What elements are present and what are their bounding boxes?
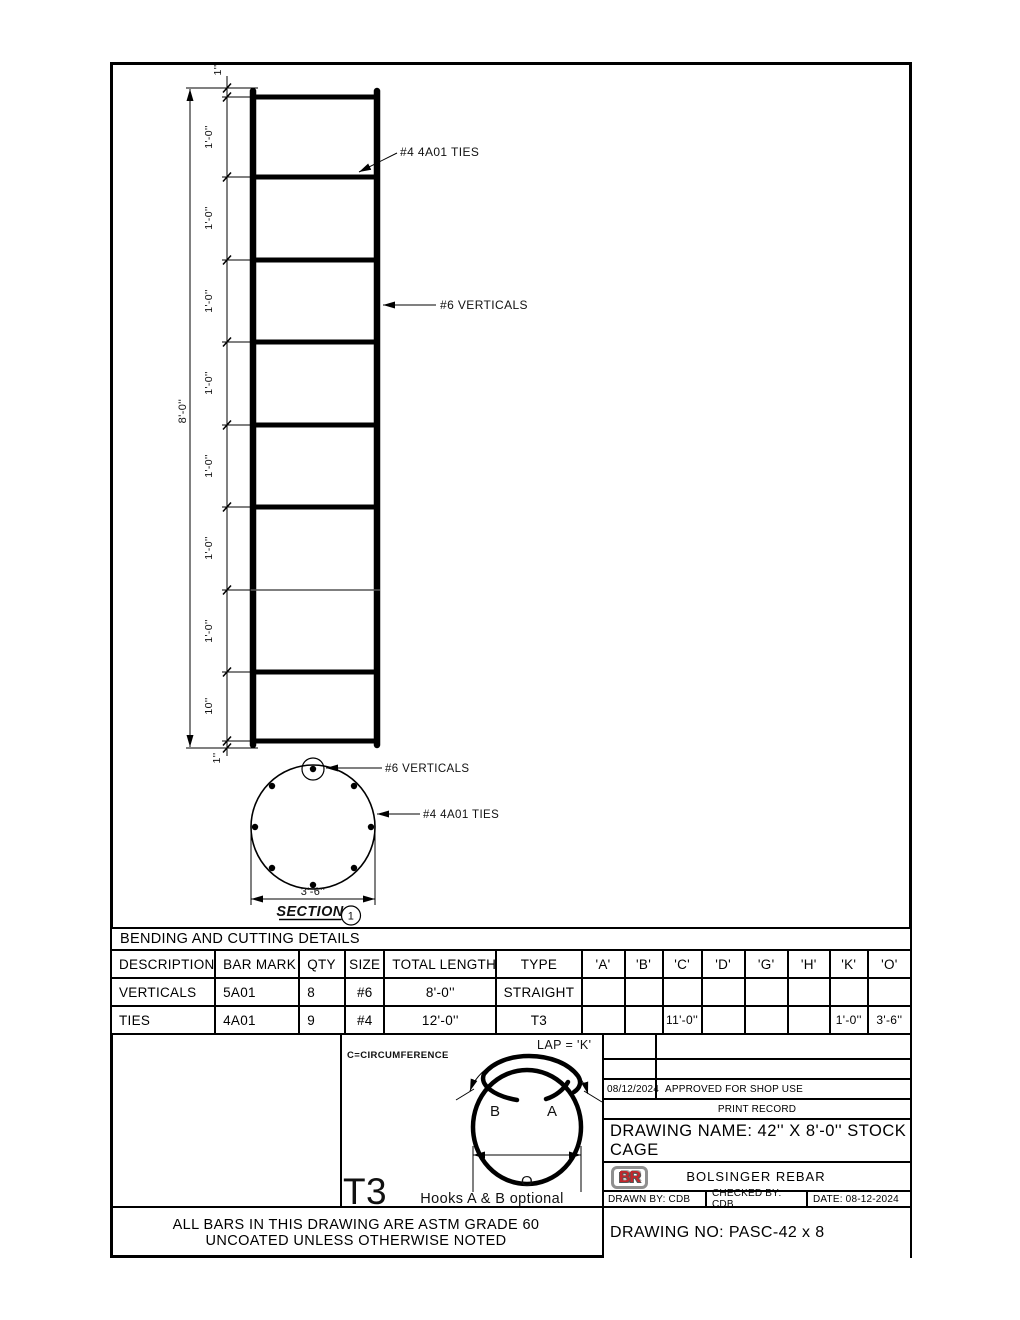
drawn-by: DRAWN BY: CDB xyxy=(604,1192,707,1206)
col-header: 'B' xyxy=(625,950,663,978)
title-block: 08/12/2024 APPROVED FOR SHOP USE PRINT R… xyxy=(602,1035,910,1258)
print-record-empty-row-1 xyxy=(604,1035,910,1060)
cell xyxy=(745,1006,788,1034)
checked-by: CHECKED BY: CDB xyxy=(707,1192,808,1206)
cell xyxy=(625,1006,663,1034)
note-line-2: UNCOATED UNLESS OTHERWISE NOTED xyxy=(205,1233,506,1249)
table-row: TIES 4A01 9 #4 12'-0'' T3 11'-0'' 1'-0''… xyxy=(111,1006,911,1034)
table-title: BENDING AND CUTTING DETAILS xyxy=(111,928,911,950)
print-record-title: PRINT RECORD xyxy=(604,1100,910,1118)
logo-letters: BR xyxy=(619,1169,640,1187)
cell: 9 xyxy=(299,1006,345,1034)
col-header: DESCRIPTION xyxy=(111,950,215,978)
cell xyxy=(663,978,702,1006)
cell xyxy=(582,1006,625,1034)
cell: 12'-0'' xyxy=(384,1006,496,1034)
cell: T3 xyxy=(496,1006,581,1034)
print-record-desc: APPROVED FOR SHOP USE xyxy=(659,1080,909,1098)
cell: VERTICALS xyxy=(111,978,215,1006)
cell xyxy=(868,978,911,1006)
col-header: 'D' xyxy=(702,950,745,978)
col-header: BAR MARK xyxy=(215,950,299,978)
col-header: 'G' xyxy=(745,950,788,978)
col-header: 'O' xyxy=(868,950,911,978)
cell: 5A01 xyxy=(215,978,299,1006)
col-header: 'A' xyxy=(582,950,625,978)
cell xyxy=(830,978,868,1006)
spare-detail-box xyxy=(110,1035,342,1208)
col-header: TOTAL LENGTH xyxy=(384,950,496,978)
print-record-date: 08/12/2024 xyxy=(604,1080,657,1098)
cell: #6 xyxy=(345,978,384,1006)
cell xyxy=(702,978,745,1006)
col-header: SIZE xyxy=(345,950,384,978)
note-line-1: ALL BARS IN THIS DRAWING ARE ASTM GRADE … xyxy=(173,1217,540,1233)
print-record-title-row: PRINT RECORD xyxy=(604,1100,910,1120)
bending-cutting-table: BENDING AND CUTTING DETAILS DESCRIPTION … xyxy=(110,927,912,1035)
credits-row: DRAWN BY: CDB CHECKED BY: CDB DATE: 08-1… xyxy=(604,1192,910,1208)
cell: 11'-0'' xyxy=(663,1006,702,1034)
table-row: VERTICALS 5A01 8 #6 8'-0'' STRAIGHT xyxy=(111,978,911,1006)
print-record-empty-row-2 xyxy=(604,1060,910,1080)
cell: 4A01 xyxy=(215,1006,299,1034)
cell: 1'-0'' xyxy=(830,1006,868,1034)
print-record-entry-row: 08/12/2024 APPROVED FOR SHOP USE xyxy=(604,1080,910,1100)
cell: 3'-6'' xyxy=(868,1006,911,1034)
company-name: BOLSINGER REBAR xyxy=(656,1163,856,1190)
col-header: 'C' xyxy=(663,950,702,978)
cell xyxy=(745,978,788,1006)
general-notes: ALL BARS IN THIS DRAWING ARE ASTM GRADE … xyxy=(110,1208,602,1258)
drawing-no-row: DRAWING NO: PASC-42 x 8 xyxy=(604,1208,910,1258)
col-header: 'H' xyxy=(788,950,830,978)
drawing-number: DRAWING NO: PASC-42 x 8 xyxy=(604,1208,910,1258)
col-header: TYPE xyxy=(496,950,581,978)
cell: #4 xyxy=(345,1006,384,1034)
cell xyxy=(625,978,663,1006)
company-logo: BR xyxy=(611,1166,648,1189)
cell xyxy=(788,1006,830,1034)
cell xyxy=(582,978,625,1006)
drawing-name: DRAWING NAME: 42'' X 8'-0'' STOCK CAGE xyxy=(604,1120,910,1161)
hook-detail-box xyxy=(342,1035,602,1208)
col-header: 'K' xyxy=(830,950,868,978)
cell: 8'-0'' xyxy=(384,978,496,1006)
drawing-name-row: DRAWING NAME: 42'' X 8'-0'' STOCK CAGE xyxy=(604,1120,910,1163)
cell xyxy=(702,1006,745,1034)
cell: 8 xyxy=(299,978,345,1006)
date: DATE: 08-12-2024 xyxy=(808,1192,912,1206)
table-header-row: DESCRIPTION BAR MARK QTY SIZE TOTAL LENG… xyxy=(111,950,911,978)
cell: TIES xyxy=(111,1006,215,1034)
cell: STRAIGHT xyxy=(496,978,581,1006)
cell xyxy=(788,978,830,1006)
col-header: QTY xyxy=(299,950,345,978)
